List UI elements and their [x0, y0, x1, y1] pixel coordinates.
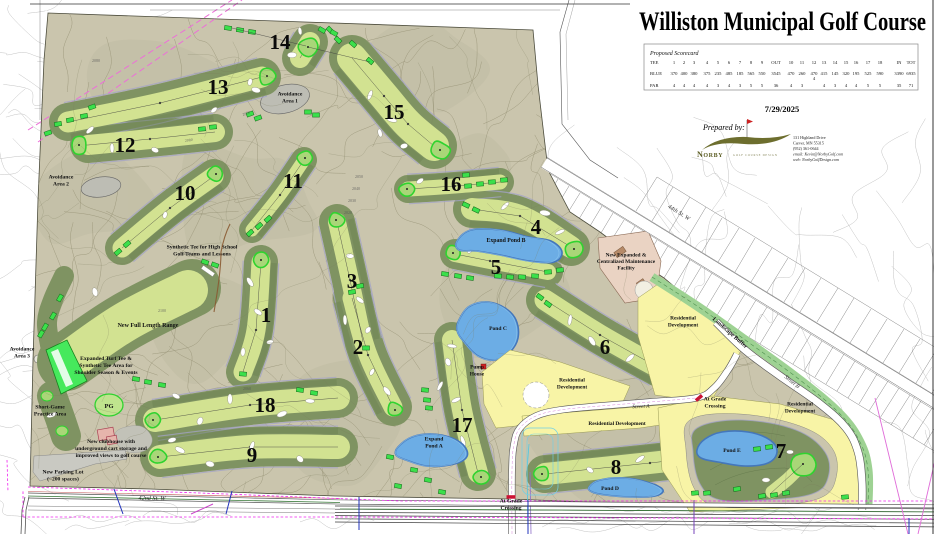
svg-text:2020: 2020 [344, 210, 352, 215]
svg-text:9: 9 [247, 443, 258, 467]
svg-text:380: 380 [691, 71, 699, 76]
svg-text:PumpHouse: PumpHouse [470, 365, 485, 378]
svg-text:2000: 2000 [183, 251, 191, 256]
svg-text:TEE: TEE [650, 60, 659, 65]
svg-text:12: 12 [115, 133, 136, 157]
svg-text:TOT: TOT [907, 60, 916, 65]
svg-text:PAR: PAR [650, 83, 659, 88]
svg-text:185: 185 [737, 71, 745, 76]
svg-text:Expand Pond B: Expand Pond B [487, 238, 526, 244]
svg-text:ExpandPond A: ExpandPond A [425, 437, 445, 450]
svg-text:Street A: Street A [632, 404, 650, 411]
svg-text:7/29/2025: 7/29/2025 [765, 104, 799, 114]
svg-text:(952) 361-0644: (952) 361-0644 [793, 146, 819, 151]
svg-text:BLUE: BLUE [650, 71, 662, 76]
svg-text:1: 1 [261, 303, 272, 327]
svg-text:2050: 2050 [355, 174, 363, 179]
svg-text:2100: 2100 [158, 308, 166, 313]
svg-text:GOLF COURSE DESIGN: GOLF COURSE DESIGN [733, 153, 778, 157]
svg-text:email: Kevin@NorbyGolf.com: email: Kevin@NorbyGolf.com [793, 152, 843, 157]
svg-text:375: 375 [704, 71, 712, 76]
svg-text:36: 36 [774, 83, 779, 88]
svg-text:web: NorbyGolfDesign.com: web: NorbyGolfDesign.com [793, 157, 839, 162]
svg-text:15: 15 [844, 60, 849, 65]
svg-text:10: 10 [175, 181, 196, 205]
svg-text:11: 11 [800, 60, 805, 65]
svg-text:2080: 2080 [92, 58, 100, 63]
svg-text:11: 11 [283, 169, 303, 193]
svg-text:525: 525 [865, 71, 873, 76]
svg-text:2060: 2060 [243, 386, 251, 391]
svg-text:370: 370 [671, 71, 679, 76]
svg-text:415: 415 [821, 71, 829, 76]
svg-text:Pond C: Pond C [489, 326, 507, 332]
svg-text:8: 8 [611, 455, 622, 479]
svg-text:Short-GamePractice Area: Short-GamePractice Area [34, 405, 67, 418]
svg-text:145: 145 [832, 71, 840, 76]
svg-text:New Parking Lot(~200 spaces): New Parking Lot(~200 spaces) [42, 470, 83, 483]
svg-text:13: 13 [208, 75, 229, 99]
svg-text:14: 14 [833, 60, 838, 65]
svg-text:2040: 2040 [352, 186, 360, 191]
svg-text:195: 195 [853, 71, 861, 76]
svg-text:Williston Municipal Golf Cours: Williston Municipal Golf Course [639, 7, 926, 36]
svg-text:16: 16 [441, 172, 462, 196]
svg-text:PG: PG [104, 403, 113, 410]
svg-text:71: 71 [909, 83, 914, 88]
svg-text:2: 2 [353, 335, 364, 359]
svg-text:Pond E: Pond E [723, 448, 741, 454]
svg-text:Proposed Scorecard: Proposed Scorecard [649, 51, 699, 57]
svg-text:7: 7 [776, 439, 787, 463]
svg-text:235: 235 [715, 71, 723, 76]
svg-text:131 Highland Drive: 131 Highland Drive [793, 135, 826, 140]
svg-text:550: 550 [759, 71, 767, 76]
svg-text:3545: 3545 [771, 71, 781, 76]
svg-text:18: 18 [255, 393, 276, 417]
svg-text:590: 590 [877, 71, 885, 76]
svg-text:260: 260 [799, 71, 807, 76]
svg-text:3390: 3390 [894, 71, 904, 76]
svg-text:17: 17 [452, 413, 473, 437]
svg-text:2030: 2030 [348, 198, 356, 203]
svg-text:At GradeCrossing: At GradeCrossing [500, 499, 523, 512]
svg-text:485: 485 [726, 71, 734, 76]
svg-text:OUT: OUT [771, 60, 781, 65]
svg-text:Synthetic Tee for High SchoolG: Synthetic Tee for High SchoolGolf Teams … [167, 245, 238, 258]
svg-text:10: 10 [789, 60, 794, 65]
svg-text:ResidentialDevelopment: ResidentialDevelopment [668, 316, 698, 329]
svg-text:13: 13 [822, 60, 827, 65]
svg-text:4: 4 [531, 215, 542, 239]
svg-text:Pond D: Pond D [601, 486, 619, 492]
svg-text:5: 5 [491, 255, 502, 279]
svg-text:470: 470 [788, 71, 796, 76]
svg-text:400: 400 [681, 71, 689, 76]
svg-text:3: 3 [347, 269, 358, 293]
svg-text:17: 17 [866, 60, 871, 65]
svg-text:Expanded Turf Tee &Synthetic T: Expanded Turf Tee &Synthetic Tee Area fo… [74, 356, 138, 376]
svg-text:320: 320 [843, 71, 851, 76]
svg-text:ResidentialDevelopment: ResidentialDevelopment [557, 378, 587, 391]
svg-text:42nd St. W: 42nd St. W [138, 495, 166, 502]
svg-text:14: 14 [270, 30, 292, 54]
svg-text:12: 12 [812, 60, 817, 65]
svg-text:16: 16 [854, 60, 859, 65]
svg-text:565: 565 [748, 71, 756, 76]
svg-text:6: 6 [600, 335, 611, 359]
svg-text:At GradeCrossing: At GradeCrossing [704, 397, 727, 410]
svg-text:6935: 6935 [906, 71, 916, 76]
svg-text:Residential Development: Residential Development [588, 421, 646, 427]
svg-text:Prepared by:: Prepared by: [702, 123, 745, 132]
svg-text:New Full Length Range: New Full Length Range [118, 323, 179, 329]
svg-text:15: 15 [384, 100, 405, 124]
svg-text:IN: IN [897, 60, 903, 65]
svg-text:ResidentialDevelopment: ResidentialDevelopment [785, 402, 815, 415]
svg-text:18: 18 [878, 60, 883, 65]
svg-text:35: 35 [897, 83, 902, 88]
